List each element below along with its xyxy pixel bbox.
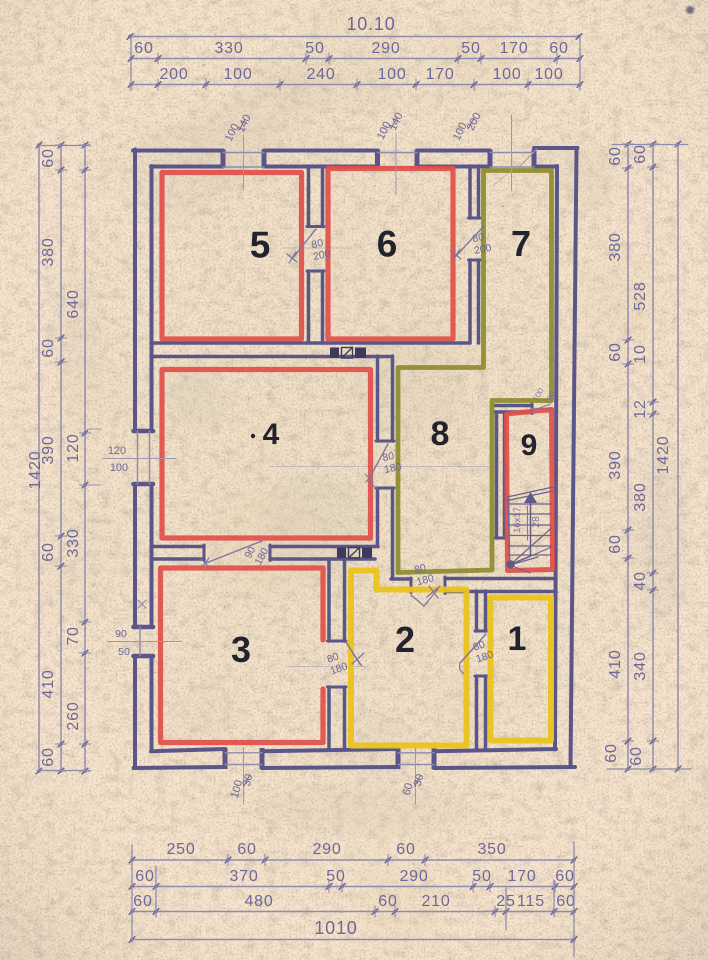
svg-text:410: 410 — [607, 649, 624, 678]
svg-text:410: 410 — [40, 669, 57, 698]
svg-text:60: 60 — [607, 146, 624, 165]
svg-text:90: 90 — [115, 628, 127, 640]
svg-text:210: 210 — [421, 893, 450, 910]
svg-text:60: 60 — [632, 144, 649, 163]
svg-text:70: 70 — [65, 626, 82, 645]
svg-text:528: 528 — [632, 281, 649, 310]
svg-text:330: 330 — [214, 40, 243, 57]
svg-text:60: 60 — [607, 342, 624, 361]
svg-text:60: 60 — [135, 868, 154, 885]
svg-text:60: 60 — [378, 893, 397, 910]
svg-text:1: 1 — [508, 620, 527, 658]
svg-text:40: 40 — [632, 571, 649, 590]
svg-text:60: 60 — [549, 40, 568, 57]
svg-text:100: 100 — [110, 462, 128, 474]
svg-text:330: 330 — [65, 528, 82, 557]
svg-text:120: 120 — [65, 433, 82, 462]
svg-text:10.10: 10.10 — [346, 14, 395, 34]
svg-text:100: 100 — [492, 66, 521, 83]
svg-text:60: 60 — [555, 868, 574, 885]
svg-text:60: 60 — [396, 841, 415, 858]
svg-text:390: 390 — [40, 435, 57, 464]
svg-text:60: 60 — [40, 542, 57, 561]
svg-text:100: 100 — [377, 66, 406, 83]
svg-text:50: 50 — [118, 646, 130, 658]
svg-text:60: 60 — [134, 40, 153, 57]
svg-text:115: 115 — [517, 893, 545, 910]
svg-text:28: 28 — [530, 516, 542, 528]
svg-text:290: 290 — [371, 40, 400, 57]
svg-text:1010: 1010 — [314, 918, 357, 938]
svg-text:100: 100 — [534, 66, 563, 83]
svg-text:12: 12 — [632, 399, 649, 418]
svg-text:170: 170 — [499, 40, 528, 57]
svg-text:350: 350 — [477, 841, 506, 858]
svg-text:170: 170 — [425, 66, 454, 83]
svg-text:50: 50 — [461, 40, 480, 57]
svg-text:9: 9 — [521, 429, 538, 462]
svg-text:60: 60 — [40, 338, 57, 357]
svg-text:4: 4 — [263, 418, 280, 451]
svg-text:100: 100 — [223, 66, 252, 83]
svg-text:250: 250 — [166, 841, 195, 858]
svg-text:1420: 1420 — [655, 436, 672, 475]
svg-text:8: 8 — [431, 415, 450, 453]
svg-text:60: 60 — [628, 746, 645, 765]
svg-text:16x17: 16x17 — [512, 507, 523, 533]
svg-text:50: 50 — [472, 868, 491, 885]
svg-text:200: 200 — [159, 66, 188, 83]
svg-text:120: 120 — [108, 445, 126, 457]
svg-text:380: 380 — [607, 232, 624, 261]
svg-text:370: 370 — [229, 868, 258, 885]
svg-text:3: 3 — [231, 629, 251, 670]
svg-text:390: 390 — [607, 450, 624, 479]
svg-text:5: 5 — [250, 224, 271, 265]
svg-text:290: 290 — [312, 841, 341, 858]
svg-text:50: 50 — [305, 40, 324, 57]
svg-text:380: 380 — [632, 482, 649, 511]
svg-text:60: 60 — [40, 148, 57, 167]
svg-text:260: 260 — [65, 701, 82, 730]
svg-text:6: 6 — [377, 223, 398, 264]
svg-text:60: 60 — [40, 747, 57, 766]
svg-text:60: 60 — [556, 893, 575, 910]
svg-text:60: 60 — [607, 534, 624, 553]
svg-text:340: 340 — [632, 651, 649, 680]
svg-text:60: 60 — [603, 743, 620, 762]
svg-text:290: 290 — [399, 868, 428, 885]
svg-text:240: 240 — [306, 66, 335, 83]
svg-text:7: 7 — [511, 223, 531, 264]
svg-text:380: 380 — [40, 237, 57, 266]
svg-text:170: 170 — [507, 868, 536, 885]
svg-text:640: 640 — [65, 289, 82, 318]
svg-text:480: 480 — [244, 893, 273, 910]
svg-text:60: 60 — [133, 893, 152, 910]
svg-text:60: 60 — [237, 841, 256, 858]
svg-text:2: 2 — [395, 619, 415, 660]
svg-text:10: 10 — [632, 344, 649, 363]
svg-text:50: 50 — [326, 868, 345, 885]
